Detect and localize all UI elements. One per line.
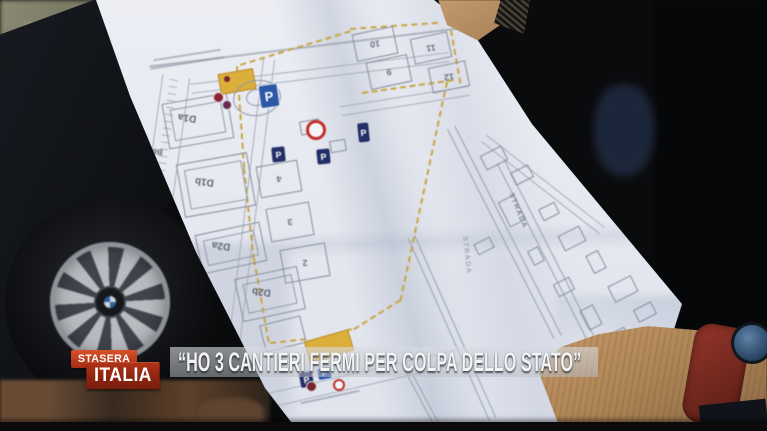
- parking-sign-icon: P: [257, 83, 280, 110]
- building-9: 9: [366, 54, 413, 90]
- chyron-banner: “HO 3 CANTIERI FERMI PER COLPA DELLO STA…: [170, 347, 598, 377]
- building: [557, 225, 586, 251]
- show-logo: STASERA ITALIA: [70, 348, 174, 392]
- building: [538, 202, 560, 222]
- no-entry-sign-icon: [306, 120, 326, 140]
- boundary-dashed-line: [240, 30, 351, 66]
- watch-face: [731, 322, 767, 364]
- road: [340, 86, 470, 116]
- building-label: D2a: [211, 239, 231, 252]
- sign-marker: [222, 100, 232, 110]
- show-logo-line2: ITALIA: [86, 362, 160, 389]
- building-label: D1b: [194, 175, 214, 188]
- tv-frame: D1a B8c D1b D2a D2b 4 3 2 10 9 11 12: [0, 0, 767, 431]
- alloy-wheel: [50, 242, 170, 362]
- parking-sign-icon: P: [356, 121, 371, 143]
- boundary-dashed-line: [350, 22, 438, 30]
- building-3: 3: [265, 201, 314, 242]
- building-label: D2b: [251, 285, 271, 298]
- street-name: STRADA: [461, 236, 472, 275]
- jeans-patch: [594, 84, 654, 176]
- no-entry-sign-icon: [333, 379, 345, 391]
- building-label: D1a: [177, 111, 197, 124]
- parking-sign-icon: P: [315, 147, 332, 165]
- wheel-logo-icon: [104, 296, 116, 308]
- letterbox-bar: [0, 422, 767, 431]
- building: [329, 139, 347, 154]
- sign-marker: [306, 381, 317, 392]
- wheel-hubcap: [94, 286, 126, 318]
- building: [473, 237, 494, 256]
- building: [585, 250, 607, 274]
- parking-sign-icon: P: [270, 145, 287, 163]
- boundary-dashed-line: [353, 299, 401, 330]
- quote-text: “HO 3 CANTIERI FERMI PER COLPA DELLO STA…: [178, 347, 581, 377]
- building-4: 4: [256, 160, 303, 199]
- site-marker: [224, 76, 230, 82]
- building-2: 2: [279, 242, 330, 283]
